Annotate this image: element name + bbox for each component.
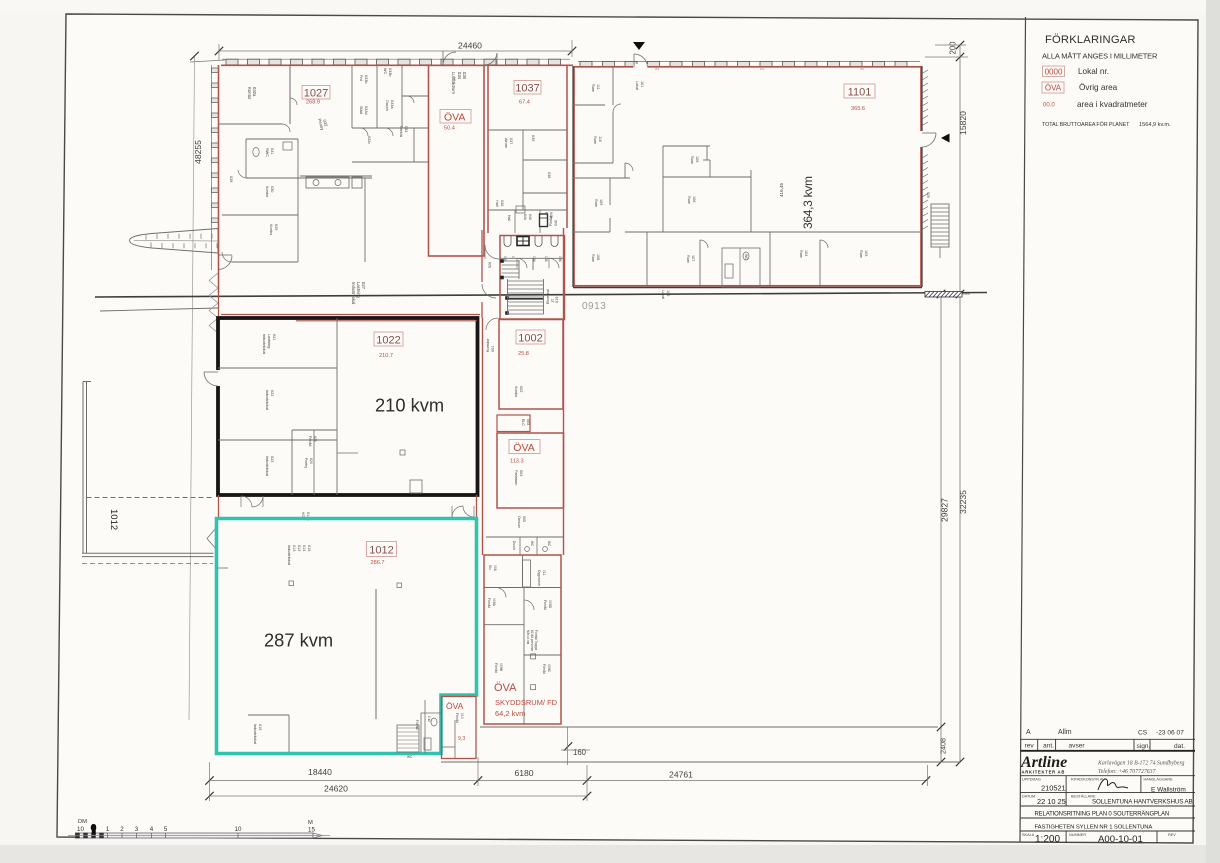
svg-text:031: 031 (270, 148, 274, 154)
svg-text:Rum: Rum (799, 250, 803, 258)
svg-text:Städ: Städ (359, 106, 363, 114)
svg-text:0913: 0913 (582, 301, 606, 312)
svg-text:009C: 009C (547, 664, 551, 673)
svg-text:10: 10 (77, 826, 84, 833)
svg-text:24460: 24460 (458, 41, 482, 51)
svg-text:32235: 32235 (958, 490, 968, 514)
svg-text:1027: 1027 (304, 88, 328, 100)
svg-text:033a: 033a (390, 100, 394, 109)
svg-text:210.7: 210.7 (379, 353, 393, 359)
svg-text:Fönåd: Fönåd (549, 216, 553, 226)
svg-text:Förråd: Förråd (308, 436, 312, 446)
svg-text:012: 012 (297, 545, 301, 551)
svg-text:Telefon: +46 707727637: Telefon: +46 707727637 (1098, 768, 1157, 775)
svg-text:033: 033 (404, 126, 408, 132)
svg-text:034: 034 (457, 72, 462, 80)
svg-text:Alrum: Alrum (504, 138, 508, 148)
svg-text:046: 046 (558, 256, 562, 262)
svg-text:1012: 1012 (108, 509, 119, 530)
svg-text:Allm: Allm (1058, 729, 1072, 736)
svg-text:0000: 0000 (1045, 67, 1063, 76)
svg-text:Kontor: Kontor (265, 186, 269, 198)
svg-text:010: 010 (460, 713, 464, 719)
svg-text:Slu: Slu (488, 565, 492, 570)
svg-text:5: 5 (164, 826, 168, 833)
svg-text:013: 013 (292, 545, 296, 551)
svg-text:WL: WL (760, 67, 765, 71)
svg-text:M: M (308, 820, 313, 826)
svg-text:Rum: Rum (594, 199, 598, 207)
svg-text:Kontor: Kontor (247, 87, 252, 100)
svg-text:011: 011 (542, 570, 546, 576)
svg-text:Omklä: Omklä (399, 126, 403, 138)
svg-text:Pannrum: Pannrum (514, 470, 518, 485)
svg-text:Kontor: Kontor (514, 386, 518, 398)
svg-text:ÖVA: ÖVA (494, 682, 517, 694)
svg-text:032d: 032d (364, 106, 368, 114)
svg-text:RITAD/KONSTR AV: RITAD/KONSTR AV (1071, 778, 1105, 782)
svg-text:A: A (1026, 729, 1031, 736)
svg-text:Förråd: Förråd (415, 720, 419, 730)
svg-text:1:200: 1:200 (1035, 834, 1060, 845)
svg-text:Hall: Hall (495, 200, 499, 207)
svg-text:SOLLENTUNA HANTVERKSHUS AB: SOLLENTUNA HANTVERKSHUS AB (1092, 799, 1193, 806)
svg-text:110: 110 (598, 136, 602, 142)
svg-text:9,3: 9,3 (458, 736, 465, 742)
svg-text:CS: CS (1138, 730, 1148, 737)
svg-text:Dygnsvhet: Dygnsvhet (537, 570, 541, 586)
svg-text:160: 160 (573, 748, 587, 757)
svg-text:Dusch: Dusch (385, 100, 389, 111)
svg-text:REV: REV (1168, 833, 1176, 837)
svg-text:1002: 1002 (518, 333, 542, 345)
svg-text:016: 016 (258, 724, 262, 730)
svg-text:929: 929 (926, 192, 930, 198)
svg-text:111: 111 (596, 84, 600, 90)
svg-text:032c: 032c (367, 136, 371, 144)
svg-text:416,45: 416,45 (779, 183, 784, 197)
svg-text:113.3: 113.3 (510, 459, 524, 465)
svg-text:027: 027 (361, 282, 366, 290)
svg-text:Korridor: Korridor (486, 338, 490, 352)
svg-text:3: 3 (135, 826, 139, 833)
svg-text:avser: avser (1069, 743, 1086, 750)
svg-text:SKALA: SKALA (1022, 833, 1035, 837)
svg-text:040: 040 (554, 220, 558, 226)
svg-text:WL: WL (860, 67, 865, 71)
svg-text:62 åå personer: 62 åå personer (530, 630, 534, 652)
svg-text:Rum: Rum (690, 156, 694, 164)
svg-text:67.4: 67.4 (519, 100, 530, 106)
svg-text:Förråd Trappa: Förråd Trappa (534, 630, 538, 650)
svg-text:ÖVA: ÖVA (444, 112, 465, 124)
svg-text:364,3 kvm: 364,3 kvm (801, 176, 815, 229)
svg-text:2: 2 (120, 826, 124, 833)
svg-text:UPPDRAG: UPPDRAG (1022, 778, 1041, 782)
svg-text:1564,9 kv.m.: 1564,9 kv.m. (1139, 122, 1171, 128)
svg-text:022: 022 (270, 390, 274, 396)
svg-text:014: 014 (302, 545, 306, 551)
svg-text:SKYDDSRUM/ FD: SKYDDSRUM/ FD (495, 698, 558, 707)
svg-text:038: 038 (547, 172, 551, 178)
svg-text:Rum: Rum (591, 254, 595, 262)
svg-text:Industrilokal: Industrilokal (253, 724, 257, 744)
svg-text:2408: 2408 (939, 738, 948, 754)
svg-text:Förråd: Förråd (487, 598, 491, 608)
svg-text:WC: WC (383, 68, 387, 75)
svg-text:DATUM: DATUM (1022, 795, 1035, 799)
svg-text:019: 019 (555, 297, 559, 303)
svg-text:DM: DM (78, 819, 87, 825)
svg-text:200: 200 (949, 41, 958, 55)
svg-text:sign.: sign. (1137, 743, 1151, 750)
svg-text:009B: 009B (499, 663, 503, 672)
svg-text:Pentry: Pentry (304, 458, 308, 468)
svg-text:10: 10 (235, 826, 242, 833)
svg-text:Nås ut via: Nås ut via (526, 630, 530, 644)
svg-text:036: 036 (500, 200, 504, 206)
svg-text:108: 108 (596, 254, 600, 260)
svg-text:Rum: Rum (593, 136, 597, 144)
svg-text:NUMMER: NUMMER (1069, 833, 1086, 837)
svg-text:15820: 15820 (958, 111, 968, 135)
svg-text:210521: 210521 (1041, 784, 1066, 793)
svg-text:TOTAL BRUTTOAREA FÖR PLANET: TOTAL BRUTTOAREA FÖR PLANET (1042, 121, 1130, 128)
svg-text:101: 101 (640, 81, 644, 87)
svg-text:ÖVA: ÖVA (513, 442, 534, 454)
svg-text:Övrig area: Övrig area (1079, 82, 1118, 92)
svg-text:Lastning: Lastning (267, 334, 271, 348)
svg-text:Industrilokal: Industrilokal (265, 456, 269, 476)
svg-text:Omrum: Omrum (517, 516, 521, 528)
svg-text:926: 926 (488, 262, 492, 268)
svg-text:005: 005 (522, 516, 526, 522)
svg-text:Industrilokal: Industrilokal (262, 334, 266, 354)
svg-text:ALLA MÅTT ANGES I MILLIMETER: ALLA MÅTT ANGES I MILLIMETER (1042, 52, 1158, 61)
svg-text:029: 029 (274, 224, 278, 230)
svg-text:Frd: Frd (359, 75, 363, 81)
svg-text:18440: 18440 (308, 767, 332, 777)
svg-text:287 kvm: 287 kvm (264, 630, 333, 651)
svg-text:FÖRKLARINGAR: FÖRKLARINGAR (1045, 34, 1136, 46)
svg-text:Förråd: Förråd (455, 713, 459, 723)
svg-text:1012: 1012 (369, 545, 393, 557)
svg-text:035: 035 (462, 72, 467, 80)
svg-text:015: 015 (307, 545, 311, 551)
svg-text:00.0: 00.0 (1043, 103, 1055, 109)
svg-text:Förråd: Förråd (543, 600, 547, 610)
svg-text:Rum: Rum (591, 84, 595, 92)
svg-text:Industrilokal: Industrilokal (351, 282, 356, 304)
svg-text:Lokal: Lokal (661, 290, 665, 299)
svg-text:Rum: Rum (859, 250, 863, 258)
svg-text:Elcentral: Elcentral (546, 289, 550, 304)
svg-text:ÖVA: ÖVA (446, 701, 464, 711)
svg-text:RWC: RWC (265, 148, 269, 157)
svg-text:22 10 25: 22 10 25 (1037, 797, 1066, 806)
svg-text:E Wallström: E Wallström (1151, 787, 1186, 794)
svg-text:008: 008 (493, 565, 497, 571)
svg-text:-23 06 07: -23 06 07 (1156, 730, 1184, 737)
svg-text:Rum: Rum (687, 196, 691, 204)
svg-text:025: 025 (313, 436, 317, 442)
svg-text:WL: WL (655, 67, 660, 71)
svg-text:Lokal nr.: Lokal nr. (1078, 67, 1109, 76)
svg-text:Lokal: Lokal (635, 81, 639, 90)
svg-text:25.8: 25.8 (518, 351, 529, 357)
svg-text:030: 030 (270, 186, 274, 192)
svg-text:040: 040 (528, 214, 532, 220)
svg-text:50.4: 50.4 (444, 126, 455, 132)
svg-text:Kök: Kök (523, 214, 527, 220)
svg-text:106: 106 (692, 196, 696, 202)
svg-text:48255: 48255 (193, 140, 203, 164)
svg-text:A00-10-01: A00-10-01 (1098, 834, 1143, 845)
svg-text:032a: 032a (252, 87, 257, 97)
svg-text:Karlavägen 18 B-172 74 Sund: Karlavägen 18 B-172 74 Sundbyberg (1097, 760, 1185, 767)
svg-text:004: 004 (519, 470, 523, 476)
svg-text:Förråd: Förråd (494, 663, 498, 673)
svg-text:WC: WC (744, 254, 748, 260)
svg-text:6180: 6180 (514, 768, 533, 778)
svg-text:109: 109 (599, 199, 603, 205)
svg-text:29827: 29827 (940, 498, 950, 522)
svg-text:ELC: ELC (521, 419, 525, 426)
svg-text:24761: 24761 (669, 770, 693, 780)
svg-text:1 W: 1 W (427, 716, 431, 722)
svg-text:4: 4 (150, 826, 154, 833)
svg-text:1101: 1101 (848, 87, 872, 99)
svg-text:Rum: Rum (686, 255, 690, 263)
svg-text:area i kvadratmeter: area i kvadratmeter (1077, 100, 1148, 109)
svg-text:FASTIGHETEN SYLLEN NR 1 SOLLEN: FASTIGHETEN SYLLEN NR 1 SOLLENTUNA (1035, 824, 1153, 830)
svg-text:ant.: ant. (1043, 743, 1054, 750)
svg-text:dat.: dat. (1174, 743, 1185, 750)
svg-text:003: 003 (526, 419, 530, 425)
svg-text:Förråd: Förråd (542, 664, 546, 674)
svg-text:RELATIONSRITNING PLAN 0 S: RELATIONSRITNING PLAN 0 SOUTERRÄNGPLAN (1035, 810, 1170, 817)
svg-text:107: 107 (691, 255, 695, 261)
svg-text:023: 023 (270, 456, 274, 462)
svg-text:102: 102 (666, 290, 670, 296)
svg-text:ÖVA: ÖVA (1045, 84, 1062, 93)
svg-text:286.7: 286.7 (371, 560, 385, 566)
svg-text:Kontor: Kontor (269, 224, 273, 236)
svg-text:033b: 033b (388, 68, 392, 76)
svg-text:024: 024 (309, 458, 313, 464)
svg-text:WC: WC (530, 541, 534, 547)
svg-text:009D: 009D (548, 600, 552, 609)
svg-text:001: 001 (491, 346, 495, 352)
svg-text:64,2 kvm: 64,2 kvm (495, 709, 525, 718)
svg-text:Industrilokal: Industrilokal (265, 390, 269, 410)
svg-text:037: 037 (509, 138, 513, 144)
svg-text:1037: 1037 (515, 83, 539, 95)
svg-text:104: 104 (804, 250, 808, 256)
svg-text:Hall: Hall (507, 215, 511, 221)
svg-text:15: 15 (308, 827, 315, 834)
svg-text:1: 1 (106, 826, 110, 833)
svg-text:ARKITEKTER AB: ARKITEKTER AB (1022, 769, 1066, 774)
svg-text:Lastning: Lastning (356, 282, 361, 299)
svg-text:002: 002 (519, 386, 523, 392)
svg-text:103: 103 (864, 250, 868, 256)
svg-text:045: 045 (544, 256, 548, 262)
svg-text:rev: rev (1025, 743, 1035, 750)
svg-text:210 kvm: 210 kvm (375, 395, 444, 416)
svg-text:033b: 033b (364, 75, 368, 83)
svg-text:HANDLÄGGARE: HANDLÄGGARE (1144, 778, 1174, 782)
svg-text:365.6: 365.6 (851, 106, 865, 112)
svg-text:268.9: 268.9 (306, 100, 320, 106)
svg-text:105: 105 (695, 156, 699, 162)
svg-text:039: 039 (531, 135, 535, 141)
svg-text:0: 0 (511, 256, 515, 258)
svg-text:WC: WC (407, 755, 413, 759)
svg-text:Dusch: Dusch (512, 541, 516, 550)
svg-text:Industrilokal: Industrilokal (287, 545, 291, 565)
svg-text:24620: 24620 (324, 784, 348, 794)
svg-text:009A: 009A (492, 598, 496, 607)
svg-text:Luftfläktrum: Luftfläktrum (451, 72, 456, 94)
svg-text:028: 028 (229, 176, 233, 182)
svg-text:021: 021 (272, 334, 276, 340)
svg-text:1022: 1022 (376, 335, 400, 347)
svg-text:WC: WC (547, 541, 551, 547)
